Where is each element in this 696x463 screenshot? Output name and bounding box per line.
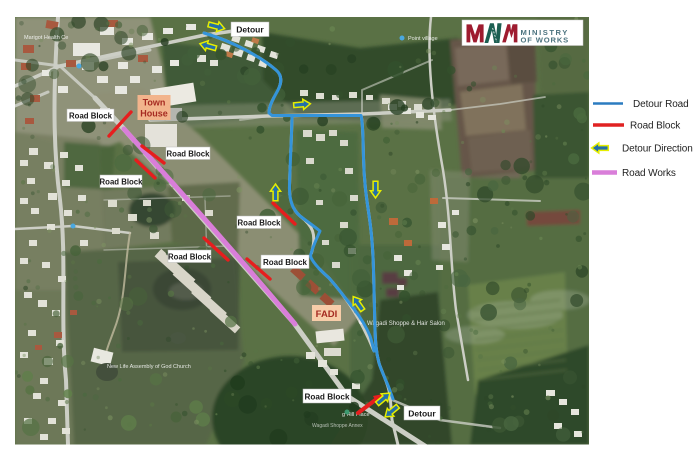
svg-text:FADI: FADI (316, 309, 338, 320)
svg-text:Marigot Health Ce: Marigot Health Ce (24, 35, 68, 41)
svg-text:Road Block: Road Block (263, 258, 308, 267)
svg-text:OF WORKS: OF WORKS (521, 35, 570, 44)
svg-text:Wagadi Shoppe Annex: Wagadi Shoppe Annex (312, 423, 363, 429)
svg-text:House: House (140, 109, 168, 119)
svg-text:Detour Road: Detour Road (633, 99, 689, 110)
svg-text:Road Block: Road Block (167, 149, 211, 158)
svg-text:Road Block: Road Block (304, 393, 349, 402)
svg-text:Road Block: Road Block (69, 111, 113, 120)
svg-text:Town: Town (143, 98, 166, 108)
svg-text:Point village: Point village (408, 36, 438, 42)
svg-text:Road Block: Road Block (630, 121, 681, 132)
svg-text:Detour Direction: Detour Direction (622, 144, 693, 155)
svg-text:Wagadi Shoppe & Hair Salon: Wagadi Shoppe & Hair Salon (367, 321, 445, 327)
svg-text:Detour: Detour (408, 409, 436, 419)
svg-text:Road Block: Road Block (238, 218, 282, 227)
svg-text:Road Block: Road Block (100, 177, 144, 186)
svg-text:Road Block: Road Block (168, 252, 212, 261)
svg-text:Road Works: Road Works (622, 168, 676, 179)
svg-text:New Life Assembly of God Churc: New Life Assembly of God Church (107, 364, 191, 370)
svg-text:Detour: Detour (236, 25, 264, 35)
